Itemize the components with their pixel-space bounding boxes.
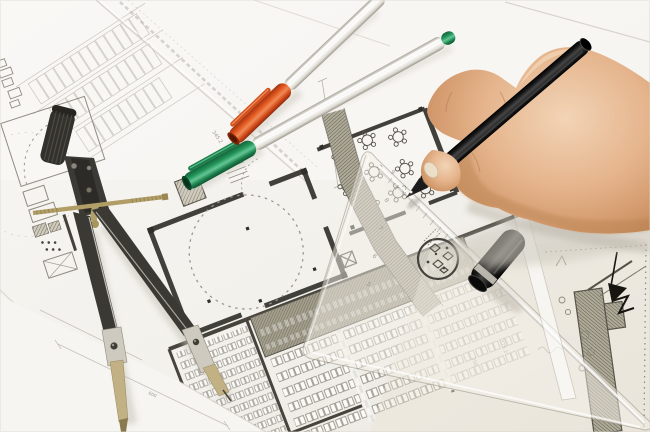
- photo-architect-drafting: 345.2: [0, 0, 650, 432]
- pen-tip-sparkle: [410, 191, 413, 194]
- photo-canvas: 345.2: [0, 0, 650, 432]
